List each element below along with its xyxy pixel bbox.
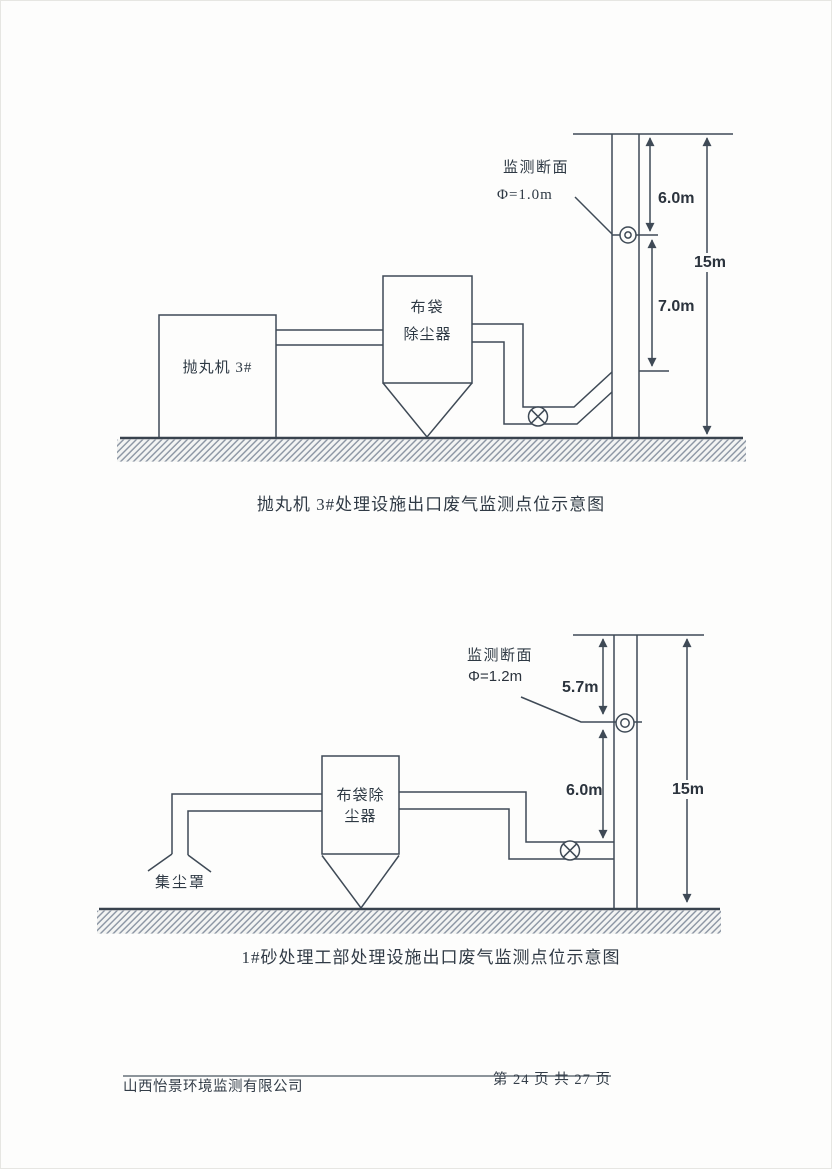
d1-dim-top-label: 6.0m (658, 189, 694, 208)
diagram-linework (1, 1, 832, 1169)
d2-collector-label-line1: 布袋除 (322, 787, 399, 805)
d1-dimension-arrows (575, 138, 707, 434)
d1-collector-label-line1: 布袋 (383, 299, 472, 317)
d2-hood-label: 集尘罩 (155, 874, 206, 892)
d2-dim-total-label: 15m (670, 780, 706, 799)
d2-monitor-section-label: 监测断面 (467, 647, 533, 665)
d2-fan-icon (561, 841, 580, 860)
d2-leader-line (521, 697, 616, 722)
d1-dim-total-label: 15m (692, 253, 728, 272)
scanned-report-page: 监测断面 Φ=1.0m 6.0m 7.0m 15m 抛丸机 3# 布袋 除尘器 … (0, 0, 832, 1169)
d1-fan-icon (529, 407, 548, 426)
d2-monitoring-port-icon (616, 714, 634, 732)
d2-stack (573, 635, 704, 909)
d1-duct-machine-to-collector (276, 330, 383, 345)
d2-duct-collector-to-stack (399, 792, 614, 859)
d1-ground (117, 438, 746, 462)
d1-machine-label: 抛丸机 3# (159, 359, 276, 377)
d2-monitor-diameter-label: Φ=1.2m (468, 668, 522, 686)
d1-dim-mid-label: 7.0m (658, 297, 694, 316)
d2-ground (97, 909, 721, 934)
footer-page-number: 第 24 页 共 27 页 (431, 1072, 611, 1089)
d1-collector-label-line2: 除尘器 (383, 326, 472, 344)
d2-dimension-arrows (521, 639, 687, 902)
d2-dim-top-label: 5.7m (562, 678, 598, 697)
d2-caption: 1#砂处理工部处理设施出口废气监测点位示意图 (31, 948, 831, 968)
d1-monitor-diameter-label: Φ=1.0m (497, 186, 553, 204)
d1-caption: 抛丸机 3#处理设施出口废气监测点位示意图 (31, 495, 831, 515)
d1-stack (573, 134, 733, 438)
d2-dust-hood (148, 794, 322, 872)
d2-bag-dust-collector (322, 756, 399, 908)
d2-collector-label-line2: 尘器 (322, 808, 399, 826)
d1-leader-line (575, 197, 612, 234)
footer-company-name: 山西怡景环境监测有限公司 (123, 1079, 303, 1096)
d1-monitor-section-label: 监测断面 (503, 159, 569, 177)
d2-dim-mid-label: 6.0m (566, 781, 602, 800)
d1-monitoring-port-icon (620, 227, 636, 243)
